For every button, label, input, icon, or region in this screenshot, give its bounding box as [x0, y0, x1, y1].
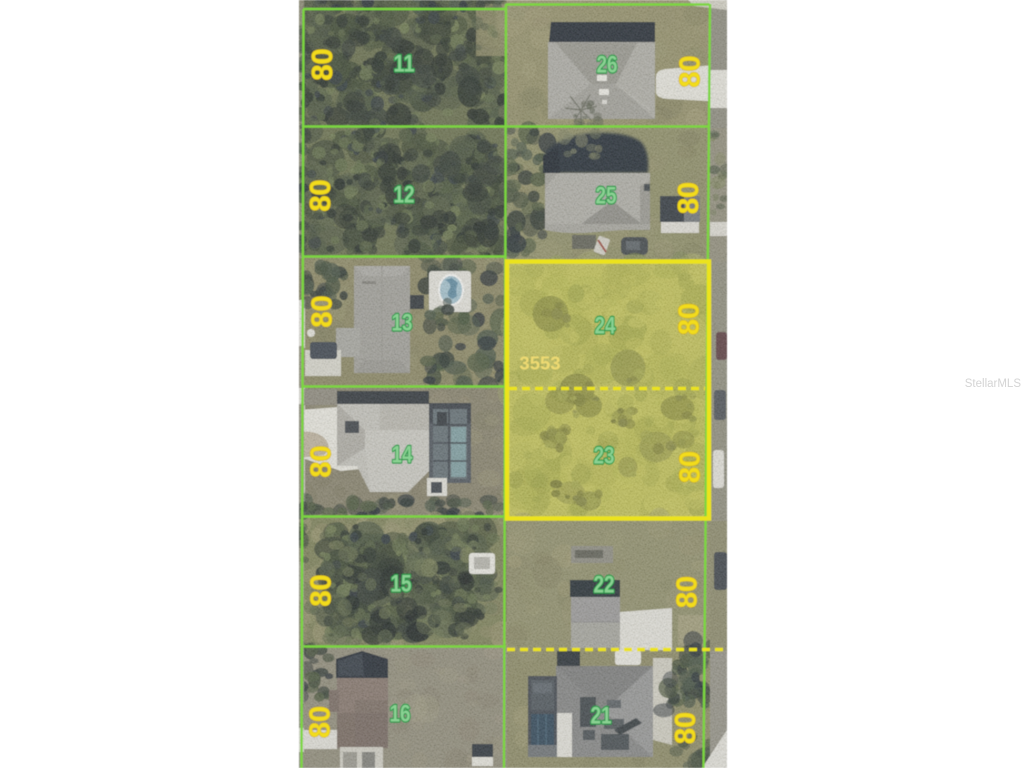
svg-text:11: 11 [394, 51, 415, 78]
svg-text:80: 80 [307, 295, 339, 327]
svg-text:3553: 3553 [519, 353, 560, 374]
svg-text:80: 80 [307, 48, 339, 80]
svg-text:80: 80 [670, 712, 702, 744]
svg-text:80: 80 [305, 179, 337, 211]
svg-text:26: 26 [597, 52, 618, 79]
svg-text:80: 80 [306, 574, 338, 606]
svg-text:StellarMLS: StellarMLS [965, 378, 1022, 390]
svg-text:16: 16 [390, 701, 411, 728]
svg-text:80: 80 [306, 445, 338, 477]
svg-text:22: 22 [594, 572, 615, 599]
svg-text:12: 12 [394, 182, 415, 209]
svg-text:80: 80 [672, 576, 704, 608]
svg-text:25: 25 [596, 183, 617, 210]
svg-text:23: 23 [594, 443, 615, 470]
svg-text:13: 13 [392, 310, 413, 337]
svg-text:21: 21 [591, 703, 612, 730]
svg-text:80: 80 [674, 303, 706, 335]
svg-text:24: 24 [595, 313, 617, 340]
svg-text:15: 15 [391, 571, 412, 598]
svg-text:14: 14 [392, 442, 414, 469]
svg-text:80: 80 [675, 451, 707, 483]
svg-text:80: 80 [305, 706, 337, 738]
svg-text:80: 80 [673, 182, 705, 214]
svg-text:80: 80 [675, 55, 707, 87]
